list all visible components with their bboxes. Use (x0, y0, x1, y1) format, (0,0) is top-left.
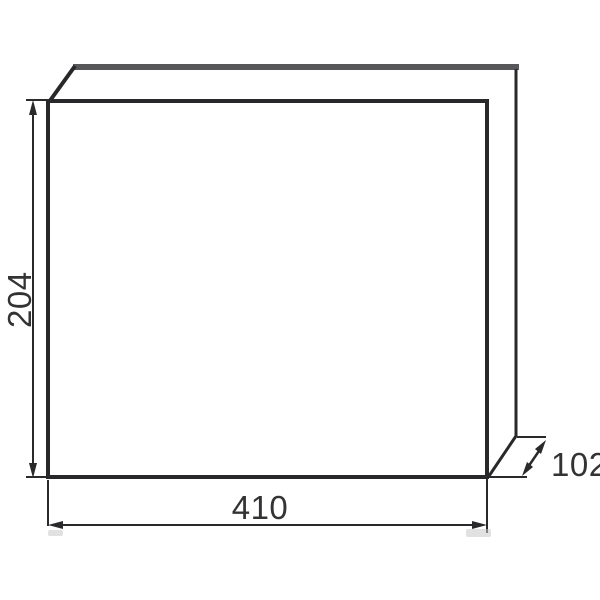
width-arrow-left-icon (48, 521, 63, 529)
height-arrow-down-icon (29, 463, 37, 478)
box-left-bevel-line (49, 66, 75, 102)
depth-dimension-label: 102 (551, 447, 600, 483)
faint-smudge-right (466, 529, 491, 537)
faint-smudge-left (48, 530, 63, 536)
width-arrow-right-icon (472, 521, 487, 529)
box-front-face (48, 101, 487, 477)
height-arrow-up-icon (29, 100, 37, 115)
height-dimension-label: 204 (4, 272, 36, 328)
dimension-drawing: 204 410 102 (0, 0, 600, 600)
depth-arrow-upper-icon (535, 440, 546, 454)
width-dimension-label: 410 (210, 490, 310, 526)
box-side-panel-bottom-bevel (489, 436, 516, 476)
